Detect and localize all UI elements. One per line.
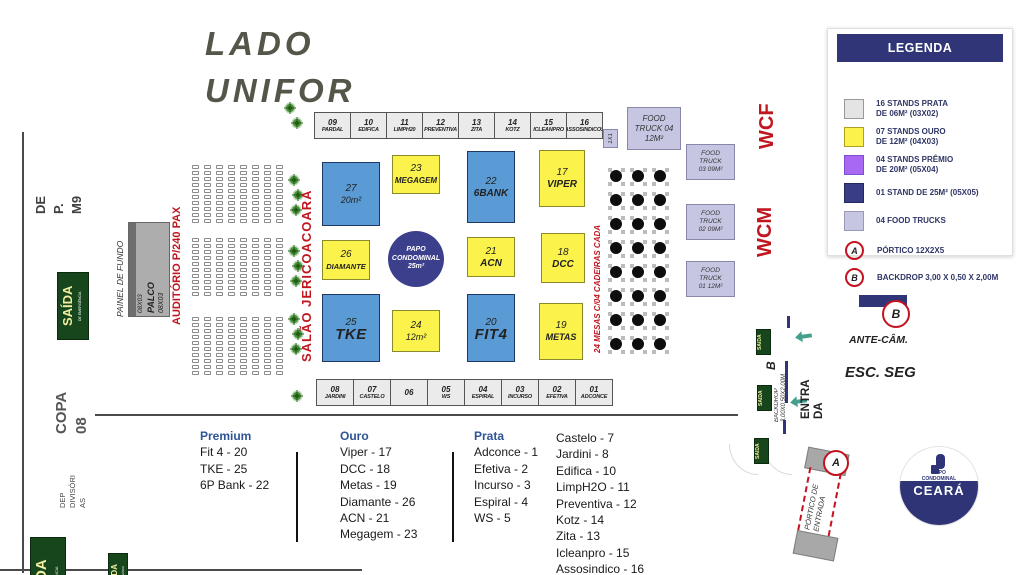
auditorium-chair (228, 213, 235, 217)
auditorium-chair (276, 353, 283, 357)
swatch-premio (844, 155, 864, 175)
auditorium-chair (192, 274, 199, 278)
auditorium-chair (252, 280, 259, 284)
auditorium-chair (204, 286, 211, 290)
mesas-grid (607, 166, 673, 358)
auditorium-chair (240, 219, 247, 223)
auditorium-chair (192, 177, 199, 181)
auditorium-chair (192, 183, 199, 187)
legend-item-prata: 16 STANDS PRATADE 06M² (03X02) (844, 99, 1008, 119)
round-table (651, 262, 673, 286)
auditorium-chair (204, 201, 211, 205)
auditorium-chair (252, 292, 259, 296)
emergency-exit-sign-clipped: SAÍDA DE EMERGÊNCIA (108, 553, 128, 575)
auditorium-chair (204, 274, 211, 278)
auditorium-chair (228, 323, 235, 327)
auditorium-chair (276, 183, 283, 187)
auditorium-chair (192, 292, 199, 296)
list-premium-items: Fit 4 - 20TKE - 256P Bank - 22 (200, 444, 269, 493)
auditorium-chair (216, 268, 223, 272)
list-item: Kotz - 14 (556, 512, 644, 528)
round-table (607, 334, 629, 358)
list-item: Icleanpro - 15 (556, 545, 644, 561)
round-table (629, 166, 651, 190)
auditorium-chair (240, 292, 247, 296)
auditorium-chair (276, 165, 283, 169)
auditorium-chair (228, 244, 235, 248)
auditorium-chair (204, 250, 211, 254)
round-table (629, 310, 651, 334)
stand-23: 23 MEGAGEM (392, 155, 440, 194)
auditorium-chair (240, 347, 247, 351)
list-item: Assosindico - 16 (556, 561, 644, 575)
auditorium-chair (192, 359, 199, 363)
auditorium-chair (216, 262, 223, 266)
stand-number: 05 (442, 385, 451, 394)
auditorium-chair (204, 244, 211, 248)
auditorium-chair (228, 286, 235, 290)
ante-cam-label: ANTE-CÂM. (849, 334, 908, 346)
auditorium-chair (192, 286, 199, 290)
auditorium-chair (216, 244, 223, 248)
auditorium-chair (192, 219, 199, 223)
list-item: Viper - 17 (340, 444, 417, 460)
stand-name: ADCONCE (581, 394, 607, 401)
auditorium-chair (252, 183, 259, 187)
auditorium-chair (276, 195, 283, 199)
auditorium-chair (192, 207, 199, 211)
stand-17: 17 VIPER (539, 150, 585, 207)
auditorium-chair (228, 195, 235, 199)
auditorium-chair (276, 171, 283, 175)
auditorium-chair (252, 165, 259, 169)
auditorium-chair (264, 250, 271, 254)
round-table (629, 286, 651, 310)
auditorium-chair (264, 317, 271, 321)
list-divider (296, 452, 298, 542)
circle-a-marker: A (823, 450, 849, 476)
auditorium-chair (252, 274, 259, 278)
auditorium-chair (228, 256, 235, 260)
list-prata-extra-items: Castelo - 7Jardini - 8Edifica - 10LimpH2… (556, 430, 644, 575)
list-item: DCC - 18 (340, 461, 417, 477)
auditorium-chair (204, 323, 211, 327)
list-item: ACN - 21 (340, 510, 417, 526)
round-table (651, 190, 673, 214)
stand-prata: 09 PARDAL (314, 112, 351, 139)
round-table (651, 238, 673, 262)
round-table (651, 334, 673, 358)
plant-icon (291, 117, 303, 129)
stand-name: ICLEANPRO (533, 127, 564, 134)
auditorium-chair (228, 207, 235, 211)
auditorium-chair (264, 341, 271, 345)
auditorium-chair (204, 213, 211, 217)
auditorium-chair (216, 335, 223, 339)
stand-20: 20 FIT4 (467, 294, 515, 362)
list-ouro-items: Viper - 17DCC - 18Metas - 19Diamante - 2… (340, 444, 417, 542)
auditorium-chair (204, 207, 211, 211)
list-item: WS - 5 (474, 510, 538, 526)
auditorium-chair (252, 335, 259, 339)
auditorium-chair (192, 365, 199, 369)
stand-prata: 15 ICLEANPRO (530, 112, 567, 139)
stand-prata: 02 EFETIVA (538, 379, 576, 406)
auditorium-chair (204, 256, 211, 260)
auditorium-chair (264, 329, 271, 333)
bottom-stand-row: 08 JARDINI 07 CASTELO 06 05 WS 04 ESPIRA… (317, 379, 613, 406)
stand-number: 14 (508, 118, 517, 127)
auditorium-chair (252, 329, 259, 333)
circle-b-marker: B (882, 300, 910, 328)
auditorium-chair (204, 165, 211, 169)
auditorium-chair (228, 317, 235, 321)
auditorium-chair (252, 365, 259, 369)
auditorium-chair (264, 195, 271, 199)
auditorium-chair (240, 335, 247, 339)
auditorium-chair (276, 207, 283, 211)
auditorium-chair (276, 359, 283, 363)
stand-number: 12 (436, 118, 445, 127)
auditorium-chair (240, 329, 247, 333)
auditorium-chair (216, 165, 223, 169)
auditorium-chair (264, 274, 271, 278)
auditorium-chair (192, 238, 199, 242)
auditorium-chair (204, 189, 211, 193)
swatch-foodtruck (844, 211, 864, 231)
auditorium-chair (216, 177, 223, 181)
stand-prata: 10 EDIFICA (350, 112, 387, 139)
auditorium-chair (228, 280, 235, 284)
stand-prata: 12 PREVENTIVA (422, 112, 459, 139)
round-table (607, 286, 629, 310)
list-item: LimpH2O - 11 (556, 479, 644, 495)
auditorium-chair (240, 195, 247, 199)
mini-exit-sign: SAÍDA (757, 385, 772, 411)
stand-19: 19 METAS (539, 303, 583, 360)
seat-block (192, 165, 283, 223)
legend-item-ouro: 07 STANDS OURODE 12M² (04X03) (844, 127, 1008, 147)
auditorium-chair (216, 317, 223, 321)
stand-number: 07 (368, 385, 377, 394)
stand-name: ZITA (471, 127, 482, 134)
auditorium-chair (276, 244, 283, 248)
auditorium-chair (252, 256, 259, 260)
auditorium-chair (264, 244, 271, 248)
stand-25: 25 TKE (322, 294, 380, 362)
emergency-exit-sign-clipped: SAÍDA DE EMERGÊNCIA (30, 537, 66, 575)
auditorium-chair (216, 213, 223, 217)
list-divider (452, 452, 454, 542)
auditorium-chair (216, 286, 223, 290)
auditorium-chair (228, 359, 235, 363)
auditorium-chair (216, 323, 223, 327)
auditorium-chair (276, 323, 283, 327)
auditorium-chair (204, 353, 211, 357)
auditorium-chair (264, 177, 271, 181)
auditorium-chair (192, 165, 199, 169)
auditorium-chair (240, 207, 247, 211)
auditorium-chair (252, 359, 259, 363)
auditorium-chair (252, 323, 259, 327)
auditorium-chair (252, 317, 259, 321)
auditorium-chair (276, 365, 283, 369)
auditorium-chair (276, 329, 283, 333)
auditorium-chair (228, 329, 235, 333)
auditorium-chair (264, 256, 271, 260)
list-item: Efetiva - 2 (474, 461, 538, 477)
auditorium-chair (252, 250, 259, 254)
stand-name: PARDAL (322, 127, 343, 134)
wcm-label: WCM (754, 207, 777, 257)
stand-prata: 04 ESPIRAL (464, 379, 502, 406)
auditorium-chair (276, 177, 283, 181)
auditorium-chair (264, 183, 271, 187)
auditorium-chair (276, 219, 283, 223)
round-table (651, 286, 673, 310)
list-item: Megagem - 23 (340, 526, 417, 542)
round-table (651, 214, 673, 238)
round-table (607, 190, 629, 214)
auditorium-chair (228, 189, 235, 193)
auditorium-chair (240, 171, 247, 175)
mid-wall (95, 414, 738, 416)
auditorium-chair (264, 347, 271, 351)
list-prata-header: Prata (474, 428, 538, 444)
auditorium-chair (264, 207, 271, 211)
stand-number: 11 (400, 118, 408, 127)
auditorium-chair (228, 335, 235, 339)
legend-item-premio: 04 STANDS PRÊMIODE 20M² (05X04) (844, 155, 1008, 175)
title-line2: UNIFOR (205, 67, 356, 114)
legend-backdrop: B BACKDROP 3,00 X 0,50 X 2,00M (844, 268, 1008, 287)
auditorio-label: AUDITÓRIO P/240 PAX (171, 193, 183, 325)
auditorium-chair (264, 323, 271, 327)
auditorium-chair (228, 268, 235, 272)
legend-portico: A PÓRTICO 12X2X5 (844, 241, 1008, 260)
auditorium-chair (240, 317, 247, 321)
auditorium-chair (204, 262, 211, 266)
auditorium-chair (252, 353, 259, 357)
auditorium-chair (228, 365, 235, 369)
auditorium-chair (228, 353, 235, 357)
auditorium-chair (204, 292, 211, 296)
auditorium-chair (228, 171, 235, 175)
auditorium-chair (216, 359, 223, 363)
auditorium-chair (264, 165, 271, 169)
list-item: Fit 4 - 20 (200, 444, 269, 460)
legend-item-25m: 01 STAND DE 25M² (05X05) (844, 183, 1008, 203)
stand-number: 09 (328, 118, 337, 127)
mesas-label: 24 MESAS C/04 CADEIRAS CADA (593, 203, 602, 353)
round-table (607, 262, 629, 286)
auditorium-chair (192, 329, 199, 333)
auditorium-chair (276, 250, 283, 254)
auditorium-chair (192, 371, 199, 375)
stand-number: 10 (364, 118, 373, 127)
stand-prata: 05 WS (427, 379, 465, 406)
stand-number: 02 (553, 385, 562, 394)
legend-panel: LEGENDA 16 STANDS PRATADE 06M² (03X02) 0… (827, 28, 1013, 256)
auditorium-chair (276, 201, 283, 205)
auditorium-chair (252, 219, 259, 223)
auditorium-chair (276, 292, 283, 296)
stand-prata: 11 LIMPH20 (386, 112, 423, 139)
auditorium-chair (192, 341, 199, 345)
list-prata: Prata Adconce - 1Efetiva - 2Incurso - 3E… (474, 428, 538, 526)
auditorium-chair (276, 317, 283, 321)
auditorium-chair (216, 371, 223, 375)
auditorium-chair (192, 262, 199, 266)
auditorium-chair (252, 371, 259, 375)
auditorium-chair (204, 268, 211, 272)
auditorium-chair (204, 335, 211, 339)
entrada-label: ENTRADA (800, 341, 826, 419)
list-premium: Premium Fit 4 - 20TKE - 256P Bank - 22 (200, 428, 269, 494)
auditorium-chair (264, 213, 271, 217)
round-table (651, 166, 673, 190)
auditorium-chair (228, 165, 235, 169)
stand-prata: 13 ZITA (458, 112, 495, 139)
auditorium-chair (204, 195, 211, 199)
auditorium-chair (228, 274, 235, 278)
auditorium-chair (204, 238, 211, 242)
auditorium-chair (240, 274, 247, 278)
auditorium-chair (216, 365, 223, 369)
stand-number: 16 (580, 118, 589, 127)
round-table (607, 166, 629, 190)
stand-name: ASSOSINDICOS (566, 127, 603, 134)
auditorium-chair (264, 268, 271, 272)
dep-divisorias-label: DEPDIVISÓRIAS (58, 446, 88, 508)
auditorium-chair (192, 195, 199, 199)
auditorium-chair (192, 280, 199, 284)
auditorium-chair (240, 365, 247, 369)
auditorium-chair (252, 201, 259, 205)
auditorium-chair (228, 341, 235, 345)
auditorium-chair (192, 347, 199, 351)
auditorium-chair (228, 292, 235, 296)
auditorium-chair (228, 250, 235, 254)
auditorium-chair (240, 371, 247, 375)
auditorium-chair (204, 347, 211, 351)
top-stand-row: 09 PARDAL 10 EDIFICA 11 LIMPH20 12 PREVE… (315, 112, 603, 139)
auditorium-chair (216, 292, 223, 296)
stand-27: 27 20m² (322, 162, 380, 226)
stand-prata: 16 ASSOSINDICOS (566, 112, 603, 139)
round-table (607, 310, 629, 334)
backdrop-segment (783, 420, 786, 434)
stand-name: KOTZ (505, 127, 519, 134)
auditorium-chair (192, 189, 199, 193)
auditorium-chair (240, 238, 247, 242)
backdrop-segment (787, 316, 790, 328)
floorplan-stage: LADO UNIFOR DEP.M9 SAÍDA DE EMERGÊNCIA P… (0, 0, 1024, 575)
auditorium-chair (192, 353, 199, 357)
painel-de-fundo-strip (129, 223, 136, 316)
papo-condominal-ceara-logo: PAPO CONDOMINAL CEARÁ (899, 446, 979, 526)
swatch-prata (844, 99, 864, 119)
list-item: Adconce - 1 (474, 444, 538, 460)
list-item: Preventiva - 12 (556, 496, 644, 512)
auditorium-chair (228, 238, 235, 242)
auditorium-chair (192, 244, 199, 248)
auditorium-chair (264, 262, 271, 266)
stand-26: 26 DIAMANTE (322, 240, 370, 280)
auditorium-chair (204, 365, 211, 369)
auditorium-chair (192, 213, 199, 217)
auditorium-chair (264, 292, 271, 296)
auditorium-chair (240, 341, 247, 345)
auditorium-chair (204, 183, 211, 187)
auditorium-chair (192, 317, 199, 321)
auditorium-chair (192, 335, 199, 339)
auditorium-chair (276, 335, 283, 339)
stand-24: 24 12m² (392, 310, 440, 352)
auditorium-chair (276, 371, 283, 375)
stand-name: ESPIRAL (472, 394, 494, 401)
auditorium-chair (252, 238, 259, 242)
auditorium-chair (276, 268, 283, 272)
auditorium-chair (204, 371, 211, 375)
auditorium-chair (240, 359, 247, 363)
stand-number: 01 (590, 385, 599, 394)
auditorium-chair (264, 335, 271, 339)
auditorium-chair (252, 268, 259, 272)
list-item: Metas - 19 (340, 477, 417, 493)
auditorium-chair (204, 359, 211, 363)
seat-block (192, 317, 283, 375)
dep-m9-label: DEP.M9 (32, 178, 86, 214)
auditorium-chair (276, 347, 283, 351)
swatch-ouro (844, 127, 864, 147)
esc-seg-label: ESC. SEG (845, 364, 916, 381)
auditorium-chair (240, 286, 247, 290)
auditorium-chair (276, 262, 283, 266)
auditorium-chair (264, 171, 271, 175)
list-prata-extra: Castelo - 7Jardini - 8Edifica - 10LimpH2… (556, 430, 644, 575)
list-ouro-header: Ouro (340, 428, 417, 444)
auditorium-chair (252, 262, 259, 266)
stand-name: INCURSO (508, 394, 532, 401)
auditorium-chair (240, 323, 247, 327)
list-item: Edifica - 10 (556, 463, 644, 479)
auditorium-chair (228, 219, 235, 223)
legend-circle-a: A (845, 241, 864, 260)
auditorium-chair (252, 171, 259, 175)
auditorium-chair (192, 250, 199, 254)
food-truck-04: FOODTRUCK 0412M² (627, 107, 681, 150)
auditorium-chair (204, 177, 211, 181)
auditorium-chair (240, 183, 247, 187)
list-item: Jardini - 8 (556, 446, 644, 462)
copa-label: COPA08 (52, 382, 92, 434)
auditorium-chair (204, 329, 211, 333)
auditorium-chair (240, 177, 247, 181)
auditorium-chair (252, 347, 259, 351)
round-table (629, 262, 651, 286)
auditorium-chair (216, 280, 223, 284)
list-item: Castelo - 7 (556, 430, 644, 446)
auditorium-chair (216, 353, 223, 357)
auditorium-chair (216, 347, 223, 351)
auditorium-chair (240, 280, 247, 284)
auditorium-chair (204, 280, 211, 284)
list-premium-header: Premium (200, 428, 269, 444)
auditorium-chair (264, 359, 271, 363)
auditorium-chair (264, 189, 271, 193)
list-prata-items: Adconce - 1Efetiva - 2Incurso - 3Espiral… (474, 444, 538, 526)
